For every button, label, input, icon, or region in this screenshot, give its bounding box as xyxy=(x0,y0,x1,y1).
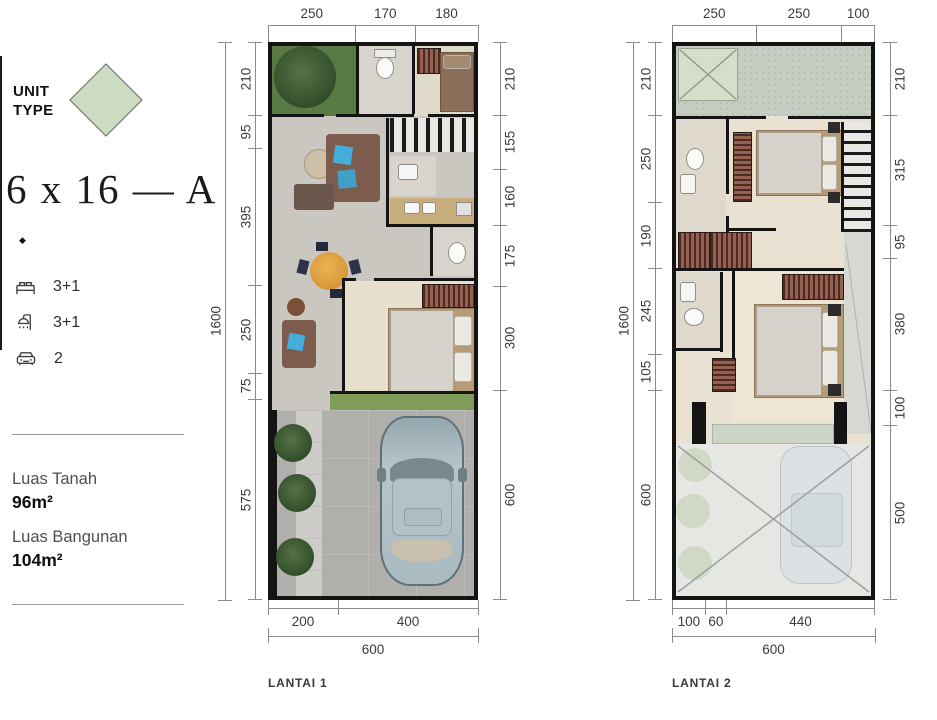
wall-segment xyxy=(692,402,706,448)
plan2-dims-left: 210 250 190 245 105 600 xyxy=(644,42,666,600)
wall-segment xyxy=(676,348,722,351)
sink-icon xyxy=(680,174,696,194)
wall-segment xyxy=(732,268,735,360)
plan2-dims-bottom-total: 600 xyxy=(672,628,875,664)
plan2-dims-top: 250 250 100 xyxy=(672,6,875,42)
plan1-dims-top: 250 170 180 xyxy=(268,6,478,42)
building-area-value: 104m² xyxy=(12,550,63,571)
dim-label: 200 xyxy=(268,614,338,629)
dim-label: 170 xyxy=(356,6,416,21)
car-sunroof xyxy=(404,508,442,526)
shower-icon xyxy=(14,312,37,333)
unit-type-line1: UNIT xyxy=(13,82,53,101)
pillow xyxy=(822,312,838,348)
wall-segment xyxy=(428,114,474,117)
sidebar-divider-bottom xyxy=(12,604,184,605)
bed-mattress xyxy=(758,132,822,194)
car-roof xyxy=(392,478,452,536)
wall-segment xyxy=(726,118,729,194)
pillow xyxy=(454,316,472,346)
car-rear-window xyxy=(392,540,452,562)
dim-label: 575 xyxy=(239,488,254,511)
wardrobe xyxy=(733,132,752,202)
wall-segment xyxy=(834,402,847,448)
left-edge-line xyxy=(0,56,2,350)
pouf xyxy=(287,298,305,316)
dim-label: 1600 xyxy=(617,306,632,336)
dim-label: 190 xyxy=(639,224,654,247)
bed-mattress xyxy=(390,310,454,392)
dim-segment: 180 xyxy=(415,6,478,42)
sofa-small xyxy=(294,184,334,210)
sink-icon xyxy=(398,164,418,180)
dim-label: 210 xyxy=(639,67,654,90)
wall-segment xyxy=(726,228,776,231)
dim-label: 600 xyxy=(639,484,654,507)
building-area-label: Luas Bangunan xyxy=(12,528,128,547)
dim-label: 160 xyxy=(503,186,518,209)
dim-label: 210 xyxy=(893,67,908,90)
dim-label: 395 xyxy=(239,206,254,229)
dim-segment: 600 xyxy=(644,391,666,600)
dim-segment: 575 xyxy=(244,399,266,600)
dim-label: 250 xyxy=(268,6,356,21)
armchair-pillow xyxy=(287,333,306,352)
dim-label: 315 xyxy=(893,159,908,182)
dim-label: 100 xyxy=(893,397,908,420)
floorplan-sheet: { "sidebar": { "unit_type": ["UNIT", "TY… xyxy=(0,0,937,720)
nightstand xyxy=(828,304,841,316)
sofa-pillow xyxy=(333,145,353,165)
bed-icon xyxy=(14,276,37,297)
wall-segment xyxy=(374,278,474,281)
spec-value-carport: 2 xyxy=(54,350,63,368)
dim-segment: 100 xyxy=(841,6,875,42)
car-icon xyxy=(14,348,38,369)
land-area-value: 96m² xyxy=(12,492,53,513)
toilet-icon xyxy=(686,148,704,170)
stove-icon xyxy=(456,202,472,216)
unit-type-line2: TYPE xyxy=(13,101,53,120)
kitchen-sink-icon xyxy=(422,202,436,214)
dim-segment: 250 xyxy=(244,286,266,373)
dim-label: 500 xyxy=(893,501,908,524)
dim-segment: 315 xyxy=(879,115,901,225)
toilet-icon xyxy=(448,242,466,264)
dining-chair xyxy=(330,289,342,298)
pillow xyxy=(822,136,837,162)
floor-label-lantai2: LANTAI 2 xyxy=(672,676,732,690)
car-mirror xyxy=(458,468,467,482)
spec-row-bedrooms: 3+1 xyxy=(14,276,80,297)
wall-segment xyxy=(342,278,345,392)
plan1-dims-right: 210 155 160 175 300 600 xyxy=(489,42,511,600)
dim-label: 400 xyxy=(338,614,478,629)
spec-value-bathrooms: 3+1 xyxy=(53,314,80,332)
wardrobe xyxy=(417,48,441,74)
dim-segment: 1600 xyxy=(214,42,236,600)
dim-segment: 75 xyxy=(244,373,266,399)
plan1-dims-left-total: 1600 xyxy=(214,42,236,600)
dim-segment: 160 xyxy=(489,169,511,225)
dim-label: 600 xyxy=(672,642,875,657)
wall-segment xyxy=(356,46,359,114)
dim-segment: 395 xyxy=(244,148,266,286)
nightstand xyxy=(828,192,840,203)
dim-segment: 245 xyxy=(644,269,666,354)
dim-segment: 105 xyxy=(644,354,666,391)
car-ghost xyxy=(780,446,852,584)
floor-label-lantai1: LANTAI 1 xyxy=(268,676,328,690)
dining-chair xyxy=(296,259,309,275)
skylight-void xyxy=(678,48,738,101)
dim-label: 300 xyxy=(503,327,518,350)
car-mirror xyxy=(377,468,386,482)
pillow xyxy=(822,350,838,386)
wall-segment xyxy=(788,116,871,119)
dim-label: 250 xyxy=(757,6,842,21)
spec-value-bedrooms: 3+1 xyxy=(53,278,80,296)
car-top-view xyxy=(380,416,464,586)
dim-label: 155 xyxy=(503,131,518,154)
sink-icon xyxy=(680,282,696,302)
wall-segment xyxy=(750,268,844,271)
dining-chair xyxy=(348,259,361,275)
dim-label: 1600 xyxy=(209,306,224,336)
roof-side-strip xyxy=(844,232,871,434)
pillow xyxy=(443,55,471,69)
dim-segment: 380 xyxy=(879,258,901,391)
dim-segment: 175 xyxy=(489,225,511,286)
wardrobe xyxy=(712,358,736,392)
wall-segment xyxy=(430,226,433,276)
dim-label: 250 xyxy=(672,6,757,21)
wall-segment xyxy=(336,114,414,117)
dim-segment: 210 xyxy=(489,42,511,115)
spec-row-bathrooms: 3+1 xyxy=(14,312,80,333)
stairs xyxy=(390,118,474,152)
sofa-pillow xyxy=(337,169,357,189)
dim-segment: 250 xyxy=(672,6,757,42)
land-area-label: Luas Tanah xyxy=(12,470,97,489)
sofa xyxy=(326,134,380,202)
dim-label: 600 xyxy=(503,484,518,507)
dim-segment: 600 xyxy=(672,628,875,664)
wall-segment xyxy=(841,122,844,232)
dim-segment: 250 xyxy=(268,6,356,42)
title-bullet: ◆ xyxy=(19,235,26,246)
wall-segment xyxy=(272,114,324,117)
dim-segment: 250 xyxy=(644,115,666,202)
floor-plan-2 xyxy=(672,42,875,600)
toilet-icon xyxy=(684,308,704,326)
dim-segment: 250 xyxy=(757,6,842,42)
dim-label: 95 xyxy=(239,124,254,139)
dim-label: 180 xyxy=(415,6,478,21)
canopy-edge xyxy=(712,424,834,444)
nightstand xyxy=(828,384,841,396)
shrub-icon xyxy=(278,474,316,512)
dim-label: 440 xyxy=(726,614,875,629)
unit-type-diamond xyxy=(69,63,143,137)
floor-plan-1 xyxy=(268,42,478,600)
dim-label: 210 xyxy=(239,67,254,90)
pillow xyxy=(454,352,472,382)
dim-segment: 155 xyxy=(489,115,511,169)
shrub-ghost-icon xyxy=(678,448,712,482)
dim-label: 60 xyxy=(706,614,726,629)
spec-row-carport: 2 xyxy=(14,348,63,369)
dim-label: 95 xyxy=(893,234,908,249)
shrub-icon xyxy=(276,538,314,576)
plan1-dims-left: 210 95 395 250 75 575 xyxy=(244,42,266,600)
unit-type-label: UNIT TYPE xyxy=(13,82,53,120)
dim-label: 250 xyxy=(239,318,254,341)
dim-segment: 95 xyxy=(879,225,901,258)
dim-segment: 190 xyxy=(644,202,666,268)
kitchen-sink-icon xyxy=(404,202,420,214)
plan1-dims-bottom-total: 600 xyxy=(268,628,478,664)
dim-label: 210 xyxy=(503,67,518,90)
dim-label: 250 xyxy=(639,148,654,171)
plan-title: 6 x 16 — A xyxy=(6,165,217,213)
dim-segment: 100 xyxy=(879,391,901,426)
dim-label: 75 xyxy=(239,379,254,394)
dim-segment: 600 xyxy=(268,628,478,664)
dim-segment: 210 xyxy=(244,42,266,115)
car-ghost-roof xyxy=(791,493,843,547)
toilet-icon xyxy=(376,57,394,79)
dim-label: 100 xyxy=(841,6,875,21)
dim-label: 600 xyxy=(268,642,478,657)
dim-segment: 95 xyxy=(244,115,266,148)
wall-segment xyxy=(386,118,389,226)
dim-label: 380 xyxy=(893,313,908,336)
dim-segment: 600 xyxy=(489,391,511,600)
wall-segment xyxy=(412,46,415,114)
garden-strip xyxy=(330,394,474,410)
wardrobe xyxy=(782,274,844,300)
wardrobe xyxy=(422,284,476,308)
stairs xyxy=(844,122,871,232)
shrub-icon xyxy=(274,424,312,462)
dim-segment: 210 xyxy=(644,42,666,115)
dim-segment: 500 xyxy=(879,426,901,600)
dim-segment: 210 xyxy=(879,42,901,115)
dim-segment: 300 xyxy=(489,286,511,391)
shrub-ghost-icon xyxy=(678,546,712,580)
pillow xyxy=(822,164,837,190)
dining-chair xyxy=(316,242,328,251)
plan2-dims-right: 210 315 95 380 100 500 xyxy=(879,42,901,600)
wall-segment xyxy=(720,272,723,352)
dim-label: 105 xyxy=(639,361,654,384)
sidebar-divider-top xyxy=(12,434,184,435)
wardrobe xyxy=(678,232,710,270)
dim-segment: 170 xyxy=(356,6,416,42)
dim-label: 175 xyxy=(503,244,518,267)
dim-label: 100 xyxy=(672,614,706,629)
bed-mattress xyxy=(756,306,822,396)
dim-label: 245 xyxy=(639,300,654,323)
nightstand xyxy=(828,122,840,133)
shrub-ghost-icon xyxy=(676,494,710,528)
wardrobe xyxy=(710,232,752,270)
tree-icon xyxy=(274,46,336,108)
